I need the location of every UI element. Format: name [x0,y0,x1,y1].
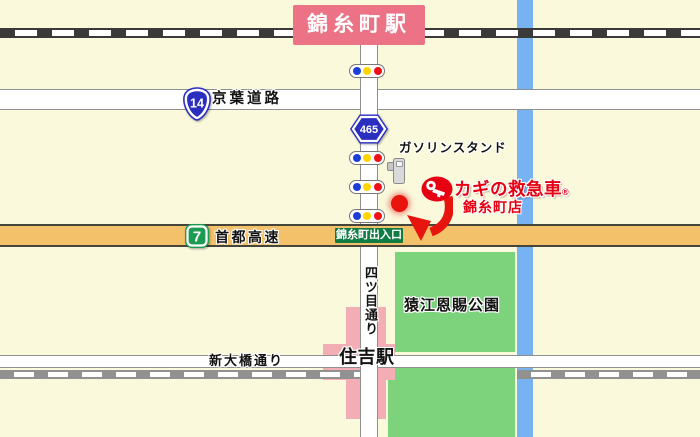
sumiyoshi-station-label: 住吉駅 [339,347,395,368]
traffic-light-icon [349,209,385,223]
map-canvas: 錦糸町駅 14 京葉道路 465 ガソリンスタンド カギの救急車® 錦糸町店 [0,0,700,437]
shin-ohashi-street-label: 新大橋通り [209,354,284,369]
kinshicho-exit-sign: 錦糸町出入口 [335,228,403,243]
shuto-route-7-shield-icon: 7 [184,223,210,249]
store-branch-label: 錦糸町店 [463,197,523,217]
gas-station-label: ガソリンスタンド [399,141,507,155]
registered-trademark: ® [562,187,569,197]
park-label: 猿江恩賜公園 [404,297,500,314]
traffic-light-icon [349,180,385,194]
traffic-light-icon [349,151,385,165]
traffic-light-icon [349,64,385,78]
subway-railway-line-east [517,370,700,379]
route-7-number: 7 [193,229,201,246]
shuto-expressway-label: 首都高速 [215,229,281,245]
yotsume-street-label: 四ツ目通り [362,266,377,336]
kinshicho-station-sign: 錦糸町駅 [293,5,425,45]
route-465-shield-icon: 465 [349,112,389,146]
keiyo-road [0,89,700,110]
keiyo-road-label: 京葉道路 [212,91,282,108]
route-465-number: 465 [360,124,378,136]
subway-railway-line-west [0,370,378,379]
route-14-number: 14 [190,97,204,111]
route-14-shield-icon: 14 [182,87,212,121]
gas-pump-icon [387,158,405,185]
key-rescue-logo-icon [421,176,453,202]
store-brand-text: カギの救急車 [454,179,562,199]
park-area-lower [388,368,515,437]
